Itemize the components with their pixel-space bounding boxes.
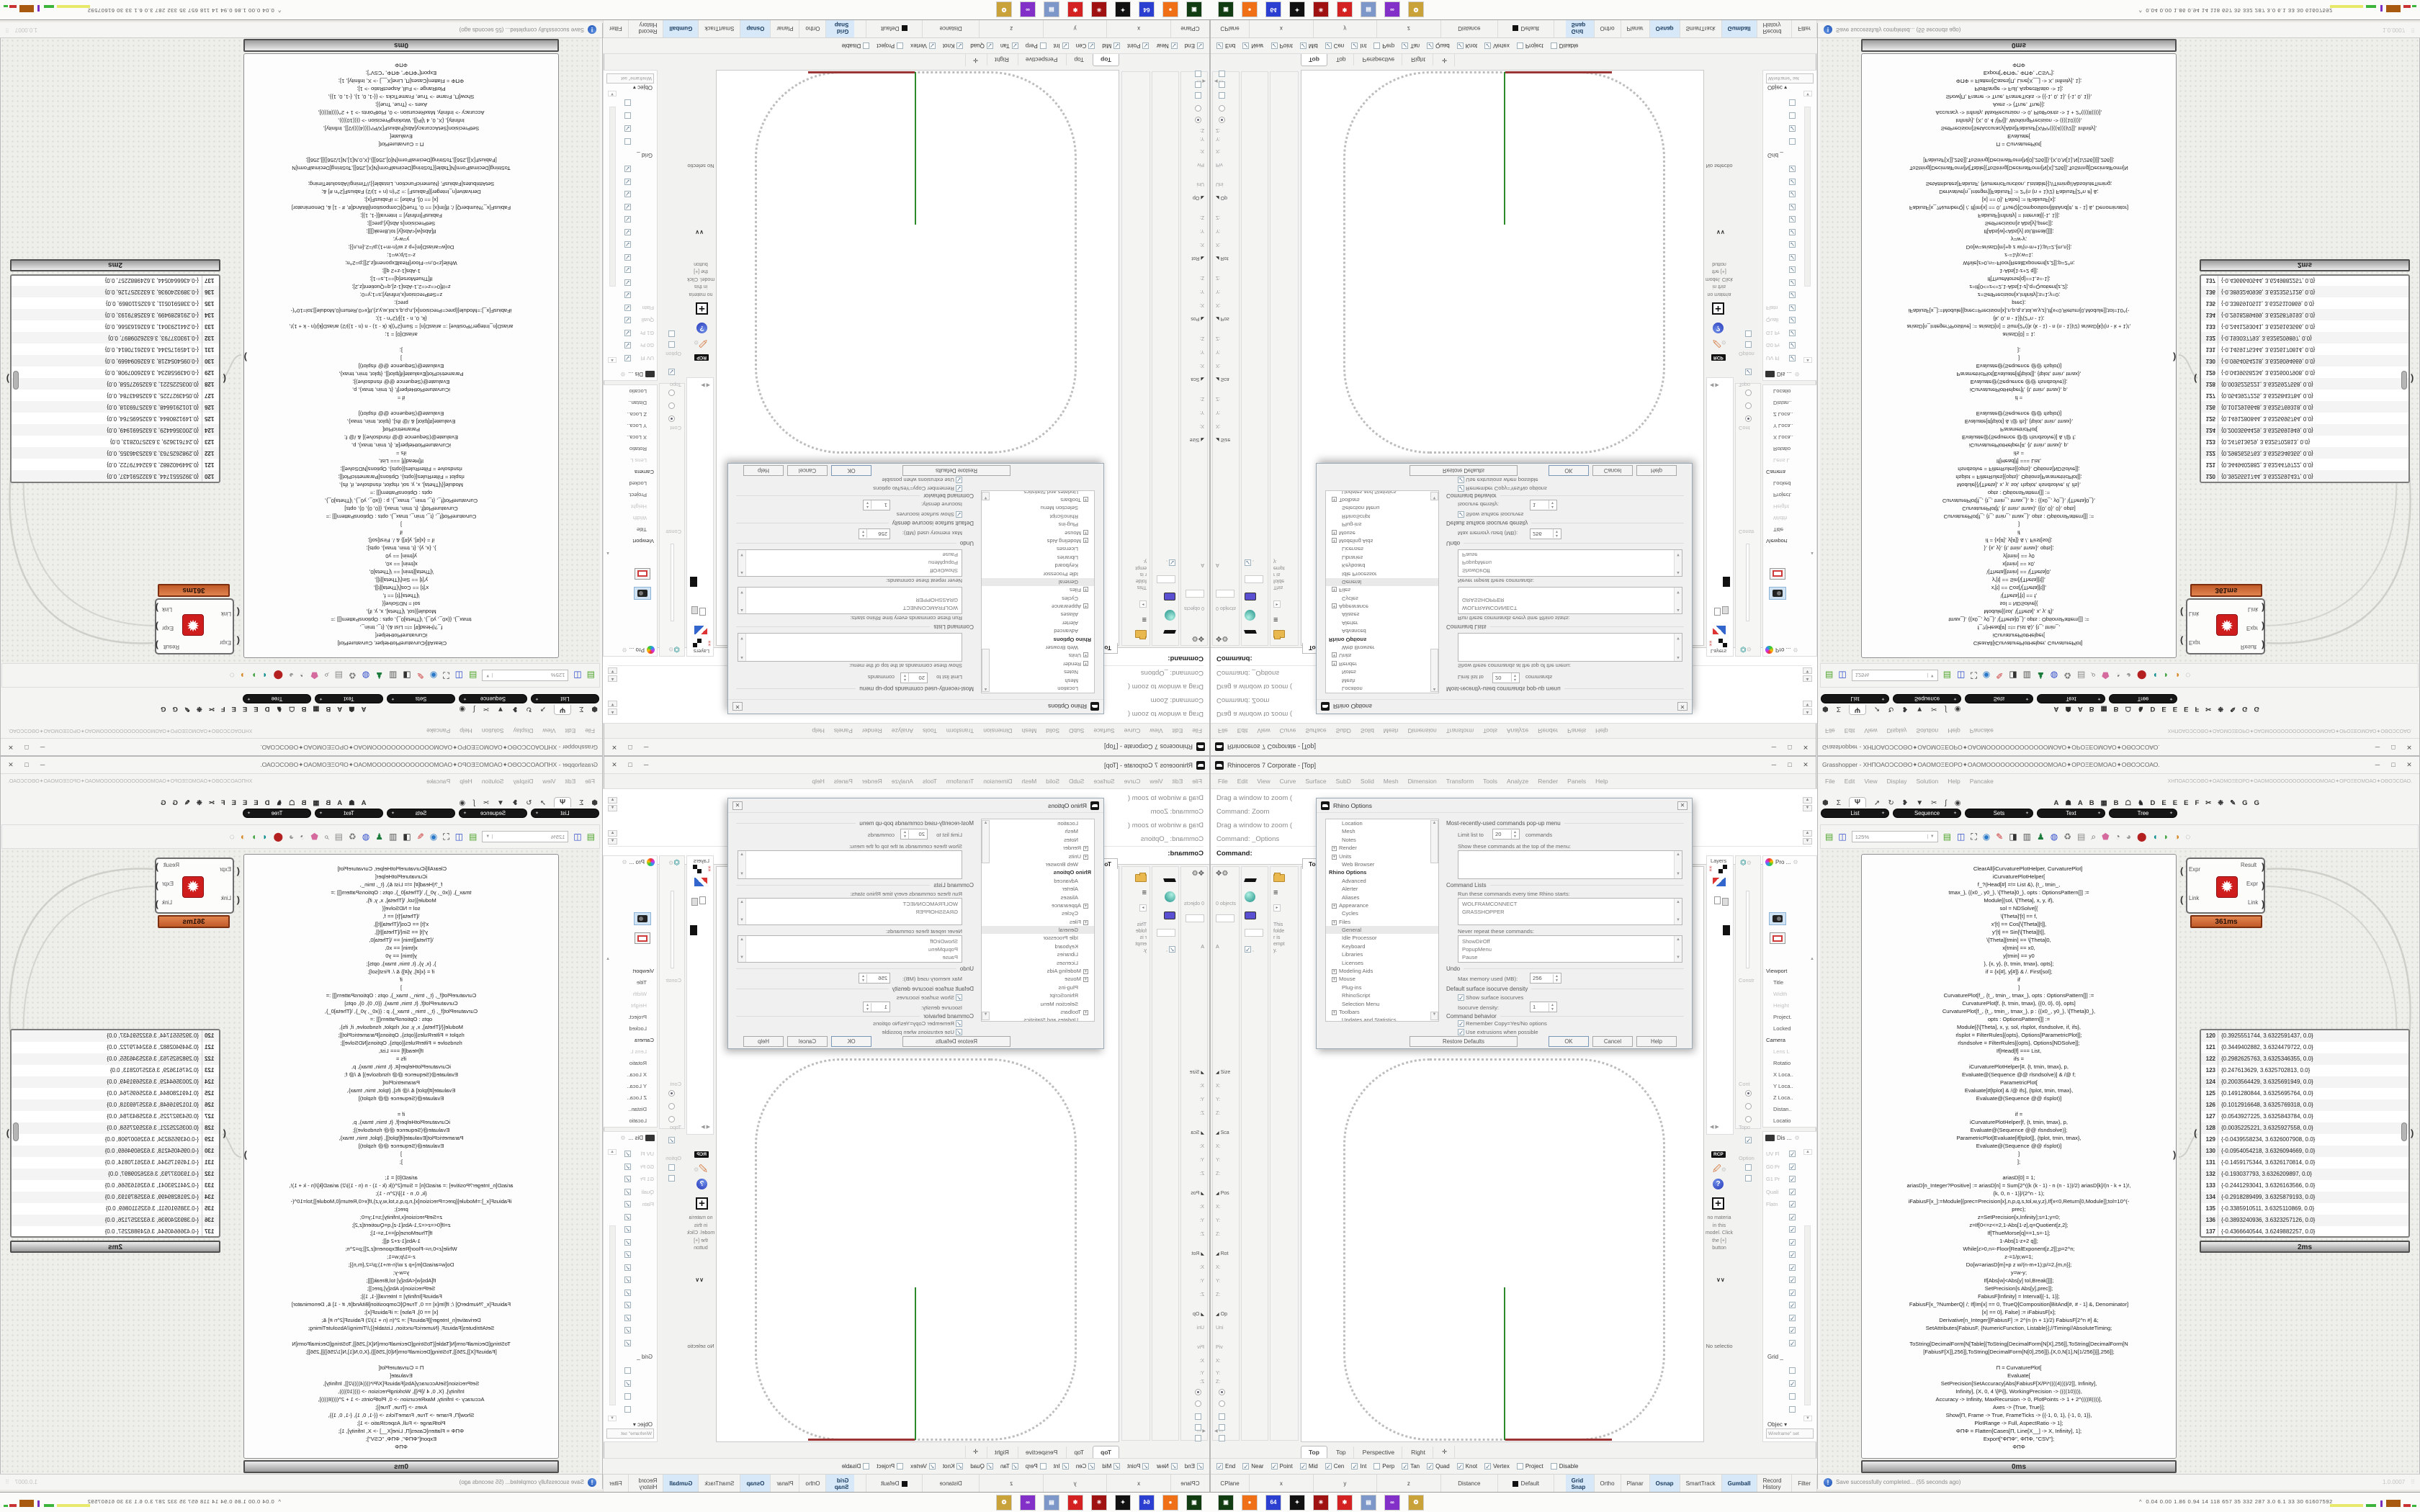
- gear-icon[interactable]: ⚙: [622, 859, 627, 865]
- camera-small-icon[interactable]: ⏣⚙: [668, 859, 680, 867]
- gh-category-icon-tab[interactable]: ✂: [1931, 799, 1937, 807]
- status-toggle[interactable]: Osnap: [1650, 19, 1680, 37]
- checkbox[interactable]: ✓: [1745, 369, 1752, 375]
- command-scrollbar[interactable]: ▲▼▲▼: [1803, 666, 1812, 715]
- data-list-row[interactable]: 127{0.0543927225, 3.6325843784, 0.0}: [12, 390, 219, 401]
- osnap-toggle[interactable]: Disable: [842, 42, 870, 49]
- gh-plugin-tab[interactable]: ☖: [289, 705, 295, 713]
- checkbox[interactable]: [1745, 341, 1752, 348]
- taskbar-app-icon[interactable]: ∞: [1020, 1495, 1036, 1511]
- display-option-row[interactable]: Quali✓: [614, 1186, 657, 1199]
- gh-toolbar-icon[interactable]: ⛶: [1971, 671, 1976, 680]
- gh-category-icon-tab[interactable]: ⬢: [1822, 799, 1829, 807]
- display-option-row[interactable]: ✓: [614, 176, 657, 189]
- gh-category-icon-tab[interactable]: Ψ: [554, 705, 571, 715]
- display-option-row[interactable]: ✓: [1763, 1274, 1806, 1287]
- minimize-button[interactable]: ─: [2372, 761, 2383, 769]
- menu-item[interactable]: Curve: [1280, 727, 1296, 734]
- checkbox[interactable]: [1219, 92, 1225, 99]
- display-option-row[interactable]: G1 Pr✓: [614, 1173, 657, 1186]
- osnap-toggle[interactable]: ✓Knot: [943, 42, 963, 49]
- mathematica-code-panel[interactable]: ClearAll[iCurvaturePlotHelper, Curvature…: [1861, 53, 2177, 658]
- output-socket[interactable]: ): [2262, 863, 2264, 870]
- property-row[interactable]: Title: [605, 977, 657, 989]
- osnap-toggle[interactable]: ✓Point: [1127, 42, 1149, 49]
- statusbar-z[interactable]: z: [979, 19, 1043, 37]
- mini-field[interactable]: [1216, 590, 1234, 598]
- panel-input-socket[interactable]: (: [223, 375, 226, 382]
- help-icon[interactable]: ?: [1713, 1179, 1724, 1189]
- grid-option-row[interactable]: [614, 96, 657, 109]
- viewport-tab[interactable]: Perspective: [1018, 1446, 1065, 1458]
- property-row[interactable]: Locatio: [605, 385, 657, 397]
- status-toggle[interactable]: SmartTrack: [698, 1475, 740, 1493]
- options-tree-item[interactable]: Keyboard: [1326, 942, 1438, 950]
- layer-book-icon[interactable]: [694, 878, 707, 886]
- menu-item[interactable]: Edit: [565, 727, 576, 734]
- menu-item[interactable]: Solution: [482, 727, 504, 734]
- command-scrollbar[interactable]: ▲▼▲▼: [1803, 797, 1812, 846]
- checkbox[interactable]: [1195, 71, 1201, 77]
- taskbar-app-icon[interactable]: ●: [1162, 1495, 1178, 1511]
- listbox-item[interactable]: ShowDirOff: [1462, 567, 1670, 575]
- gh-category-icon-tab[interactable]: ▼: [1916, 799, 1923, 807]
- options-tree-item[interactable]: +Mouse: [982, 975, 1094, 983]
- data-list-row[interactable]: 128{0.0035225221, 3.6325927558, 0.0}: [2201, 1122, 2408, 1134]
- options-tree-item[interactable]: Aliases: [982, 611, 1094, 618]
- gh-plugin-tab[interactable]: ☖: [2125, 705, 2131, 713]
- pin-link-out[interactable]: Link: [162, 899, 172, 906]
- property-row[interactable]: Z Loca..: [1763, 408, 1815, 420]
- grid-option-row[interactable]: [1763, 1390, 1806, 1403]
- property-row[interactable]: Height: [1763, 1000, 1815, 1012]
- options-tree-item[interactable]: Aliases: [1326, 611, 1438, 618]
- camera-small-icon[interactable]: ⏣⚙: [668, 645, 680, 653]
- gh-category-icon-tab[interactable]: ◉: [460, 799, 466, 807]
- page-icon[interactable]: [699, 608, 706, 616]
- menu-item[interactable]: SubD: [1069, 778, 1084, 785]
- viewport-tab[interactable]: Top: [1093, 1446, 1119, 1458]
- display-option-row[interactable]: Flatn✓: [614, 1198, 657, 1211]
- data-list-row[interactable]: 137{-0.4366640544, 3.6249882257, 0.0}: [2201, 274, 2408, 286]
- gh-toolbar-icon[interactable]: ◌: [2185, 832, 2190, 841]
- options-tree-item[interactable]: General: [982, 578, 1094, 586]
- help-button[interactable]: Help: [743, 1036, 784, 1047]
- resize-grip[interactable]: ⠿: [2411, 1479, 2415, 1485]
- display-icon[interactable]: [1245, 912, 1256, 919]
- property-row[interactable]: Viewport: [605, 966, 657, 977]
- gh-category-icon-tab[interactable]: ↻: [526, 705, 532, 713]
- camera-button[interactable]: [1769, 912, 1786, 925]
- gh-plugin-tab[interactable]: E: [2184, 799, 2188, 807]
- gh-category-icon-tab[interactable]: ➚: [540, 705, 546, 713]
- command-scrollbar[interactable]: ▲▼▲▼: [608, 666, 617, 715]
- pin-expr-out[interactable]: Expr: [2246, 625, 2258, 631]
- scroll-down-icon[interactable]: ▼: [1803, 1416, 1812, 1421]
- display-option-row[interactable]: ✓: [1763, 176, 1806, 189]
- gh-toolbar-icon[interactable]: ⌕: [324, 832, 329, 841]
- slider-track[interactable]: [671, 891, 674, 968]
- property-row[interactable]: Camera: [605, 1035, 657, 1046]
- object-section-label[interactable]: Objec ▾: [1767, 84, 1787, 91]
- options-tree-item[interactable]: Location: [1326, 819, 1438, 827]
- gh-subcategory-pill[interactable]: Sets✦: [1965, 809, 2033, 818]
- gh-plugin-tab[interactable]: B: [2114, 705, 2119, 713]
- status-toggle[interactable]: Planar: [1621, 1475, 1650, 1493]
- hamburger-icon[interactable]: ≡: [1273, 888, 1277, 897]
- restore-defaults-button[interactable]: Restore Defaults: [1410, 1036, 1518, 1047]
- taskbar-app-icon[interactable]: ∞: [1384, 1495, 1400, 1511]
- data-list-row[interactable]: 137{-0.4366640544, 3.6249882257, 0.0}: [2201, 1226, 2408, 1238]
- taskbar-app-icon[interactable]: ❂: [1408, 2, 1424, 18]
- grid-option-row[interactable]: [614, 109, 657, 122]
- gh-toolbar-icon[interactable]: ◖: [262, 832, 267, 841]
- display-option-row[interactable]: ✓: [1763, 188, 1806, 201]
- status-toggle[interactable]: Grid Snap: [825, 1475, 854, 1493]
- viewport-tab[interactable]: Top: [1093, 54, 1119, 66]
- display-option-row[interactable]: G1 Pr✓: [614, 327, 657, 340]
- listbox-item[interactable]: GRASSHOPPER: [750, 908, 958, 916]
- gh-plugin-tab[interactable]: ❉: [2218, 799, 2223, 807]
- statusbar-cplane[interactable]: CPlane: [1211, 1475, 1250, 1493]
- gh-category-icon-tab[interactable]: Ψ: [1849, 797, 1866, 807]
- menu-item[interactable]: Edit: [1845, 727, 1855, 734]
- page-icon[interactable]: [1722, 898, 1729, 906]
- gh-plugin-tab[interactable]: ✎: [184, 705, 190, 713]
- display-option-row[interactable]: ✓: [614, 251, 657, 264]
- menu-item[interactable]: Surface: [1305, 778, 1326, 785]
- gh-toolbar-icon[interactable]: ◖: [262, 671, 267, 680]
- gh-plugin-tab[interactable]: ♞: [2138, 799, 2144, 807]
- listbox-item[interactable]: PopupMenu: [750, 945, 958, 953]
- gh-toolbar-icon[interactable]: ✎: [1996, 832, 2003, 841]
- output-socket[interactable]: ): [156, 863, 158, 870]
- statusbar-layer[interactable]: Default: [1498, 19, 1554, 37]
- data-list-row[interactable]: 131{-0.1459175344, 3.6326170814, 0.0}: [12, 343, 219, 355]
- dialog-titlebar[interactable]: Rhino Options ✕: [1317, 798, 1692, 813]
- data-list-row[interactable]: 121{0.3449402882, 3.6324479722, 0.0}: [2201, 459, 2408, 470]
- data-list-row[interactable]: 136{-0.3893240936, 3.6323257126, 0.0}: [2201, 286, 2408, 297]
- property-row[interactable]: Distan..: [605, 397, 657, 408]
- mini-field[interactable]: [1245, 575, 1263, 583]
- data-list-panel[interactable]: 120{0.3925551744, 3.6322591437, 0.0}121{…: [10, 274, 220, 483]
- mathematica-code-panel[interactable]: ClearAll[iCurvaturePlotHelper, Curvature…: [243, 53, 559, 658]
- expand-arrow[interactable]: ▸: [1139, 904, 1147, 912]
- data-list-row[interactable]: 123{0.247613629, 3.6325702813, 0.0}: [12, 436, 219, 447]
- mini-field[interactable]: [1245, 929, 1263, 937]
- menu-item[interactable]: Pancake: [1970, 727, 1994, 734]
- pin-link-out[interactable]: Link: [2248, 606, 2258, 613]
- options-tree-item[interactable]: +Files: [982, 586, 1094, 594]
- menu-item[interactable]: Solution: [1917, 727, 1939, 734]
- gh-toolbar-icon[interactable]: ⛶: [443, 671, 449, 680]
- object-section-label[interactable]: Objec ▾: [633, 1421, 653, 1428]
- output-socket[interactable]: ): [2262, 901, 2264, 908]
- options-tree-item[interactable]: Notes: [982, 836, 1094, 844]
- gh-plugin-tab[interactable]: ✎: [2230, 705, 2236, 713]
- data-list-row[interactable]: 130{-0.0954054218, 3.6326094669, 0.0}: [2201, 1146, 2408, 1157]
- gh-toolbar-icon[interactable]: ◕: [2126, 832, 2131, 841]
- menu-item[interactable]: View: [542, 727, 555, 734]
- radio[interactable]: [668, 1103, 675, 1110]
- gh-toolbar-icon[interactable]: ◨: [2009, 671, 2017, 680]
- options-tree-item[interactable]: Mesh: [1326, 676, 1438, 684]
- menu-item[interactable]: Curve: [1124, 778, 1141, 785]
- gh-plugin-tab[interactable]: E: [2173, 799, 2177, 807]
- layer-book-icon[interactable]: [1713, 626, 1726, 634]
- options-tree-item[interactable]: Licenses: [982, 959, 1094, 967]
- gh-plugin-tab[interactable]: B: [302, 705, 307, 713]
- viewport-tab[interactable]: Top: [1066, 1446, 1091, 1458]
- gh-plugin-tab[interactable]: E: [2184, 705, 2188, 713]
- checkbox[interactable]: [668, 1164, 675, 1171]
- expand-arrow[interactable]: ▸: [1273, 904, 1281, 912]
- sphere-icon[interactable]: [1245, 610, 1255, 621]
- display-option-row[interactable]: ✓: [1763, 1248, 1806, 1261]
- maximize-button[interactable]: □: [21, 761, 32, 769]
- menu-item[interactable]: Display: [513, 727, 533, 734]
- listbox-item[interactable]: PopupMenu: [1462, 945, 1670, 953]
- menu-item[interactable]: Render: [1538, 727, 1558, 734]
- data-list-row[interactable]: 120{0.3925551744, 3.6322591437, 0.0}: [2201, 1030, 2408, 1042]
- gh-toolbar-icon[interactable]: ⬤: [2137, 671, 2146, 680]
- status-toggle[interactable]: Ortho: [1595, 1475, 1621, 1493]
- gear-icon[interactable]: ⚙: [1794, 371, 1799, 377]
- options-tree-item[interactable]: +Toolbars: [982, 1008, 1094, 1016]
- menu-item[interactable]: Edit: [1237, 778, 1248, 785]
- dialog-titlebar[interactable]: Rhino Options ✕: [1317, 699, 1692, 714]
- property-row[interactable]: Width: [1763, 989, 1815, 1000]
- listbox-item[interactable]: PopupMenu: [750, 559, 958, 567]
- gh-plugin-tab[interactable]: ▦: [313, 705, 319, 713]
- options-tree-item[interactable]: Plug-ins: [982, 521, 1094, 528]
- status-toggle[interactable]: Ortho: [1595, 19, 1621, 37]
- gh-subcategory-pill[interactable]: Sequence✦: [459, 694, 527, 703]
- osnap-toggle[interactable]: ✓Quad: [970, 42, 993, 49]
- data-list-row[interactable]: 124{0.2003564429, 3.6325691949, 0.0}: [12, 424, 219, 436]
- osnap-toggle[interactable]: Project: [1517, 42, 1543, 49]
- status-toggle[interactable]: Osnap: [740, 19, 770, 37]
- display-option-row[interactable]: ✓: [614, 1287, 657, 1300]
- radio[interactable]: [1195, 117, 1201, 123]
- scroll-up-icon[interactable]: ▲: [1810, 551, 1814, 555]
- gh-plugin-tab[interactable]: B: [2089, 705, 2094, 713]
- menu-item[interactable]: Transform: [1446, 727, 1474, 734]
- osnap-toggle[interactable]: ✓Tan: [1000, 1463, 1018, 1470]
- dialog-close-button[interactable]: ✕: [1677, 703, 1688, 711]
- grid-option-row[interactable]: [614, 1364, 657, 1377]
- layer-book-icon[interactable]: [694, 626, 707, 634]
- gh-toolbar-icon[interactable]: ◍: [362, 671, 369, 680]
- gh-toolbar-icon[interactable]: ◨: [2009, 832, 2017, 841]
- gh-toolbar-icon[interactable]: ⬟: [310, 832, 318, 841]
- layer-book-icon[interactable]: [1713, 878, 1726, 886]
- properties-title[interactable]: Pro ...: [629, 647, 645, 653]
- data-list-row[interactable]: 136{-0.3893240936, 3.6323257126, 0.0}: [12, 286, 219, 297]
- rcp-badge[interactable]: RCP: [1711, 1151, 1726, 1158]
- options-tree-item[interactable]: Libraries: [982, 553, 1094, 561]
- gh-subcategory-pill[interactable]: Sets✦: [387, 694, 455, 703]
- property-row[interactable]: Title: [1763, 977, 1815, 989]
- gh-plugin-tab[interactable]: G: [2242, 705, 2247, 713]
- options-tree-item[interactable]: Advanced: [1326, 877, 1438, 885]
- options-tree-item[interactable]: Location: [982, 819, 1094, 827]
- maximize-button[interactable]: □: [2388, 743, 2399, 751]
- statusbar-y[interactable]: y: [1314, 19, 1378, 37]
- property-row[interactable]: Width: [605, 512, 657, 523]
- sphere-icon[interactable]: [1165, 891, 1175, 902]
- ok-button[interactable]: OK: [831, 465, 871, 476]
- menu-item[interactable]: Analyze: [892, 778, 913, 785]
- page-icon[interactable]: [691, 606, 698, 614]
- data-list-row[interactable]: 132{-0.193037793, 3.6326209897, 0.0}: [12, 1169, 219, 1180]
- top-commands-listbox[interactable]: ▲▼: [1458, 850, 1682, 879]
- gh-plugin-tab[interactable]: E: [243, 799, 247, 807]
- taskbar-app-icon[interactable]: ✱: [1337, 2, 1353, 18]
- gh-toolbar-icon[interactable]: ◍: [362, 832, 369, 841]
- status-toggle[interactable]: Gumball: [1722, 19, 1757, 37]
- gh-category-icon-tab[interactable]: Σ: [1837, 799, 1841, 807]
- checkbox[interactable]: ✓: [668, 1137, 675, 1143]
- limit-input[interactable]: 20▲▼: [900, 672, 928, 683]
- menu-item[interactable]: Help: [1948, 778, 1960, 785]
- taskbar-app-icon[interactable]: ✦: [1115, 2, 1131, 18]
- pin-result-out[interactable]: Result: [2241, 862, 2257, 868]
- statusbar-y[interactable]: y: [1314, 1475, 1378, 1493]
- options-tree-item[interactable]: Web Browser: [982, 644, 1094, 652]
- rcp-badge[interactable]: RCP: [694, 354, 709, 361]
- gh-plugin-tab[interactable]: ☗: [2065, 799, 2071, 807]
- data-list-row[interactable]: 123{0.247613629, 3.6325702813, 0.0}: [12, 1065, 219, 1076]
- osnap-toggle[interactable]: ✓End: [1185, 42, 1204, 49]
- options-tree-item[interactable]: Location: [982, 685, 1094, 693]
- menu-item[interactable]: SubD: [1336, 778, 1351, 785]
- slider-track[interactable]: [1746, 891, 1749, 968]
- page-icon[interactable]: [1714, 608, 1721, 616]
- display-option-row[interactable]: Quali✓: [1763, 314, 1806, 327]
- options-tree-item[interactable]: General: [1326, 578, 1438, 586]
- chevron-up-icon[interactable]: ^: [2139, 1498, 2142, 1505]
- checkbox[interactable]: [1745, 1164, 1752, 1171]
- status-toggle[interactable]: SmartTrack: [1680, 19, 1722, 37]
- gh-category-icon-tab[interactable]: ↻: [1888, 705, 1894, 713]
- data-list-row[interactable]: 137{-0.4366640544, 3.6249882257, 0.0}: [12, 274, 219, 286]
- rhino-titlebar[interactable]: Rhinoceros 7 Corporate - [Top] ─ □ ✕: [604, 757, 1209, 774]
- data-list-row[interactable]: 135{-0.3385910511, 3.6325110869, 0.0}: [12, 1203, 219, 1215]
- gh-subcategory-pill[interactable]: Text✦: [315, 694, 383, 703]
- gh-plugin-tab[interactable]: E: [254, 705, 258, 713]
- cancel-button[interactable]: Cancel: [787, 465, 828, 476]
- osnap-toggle[interactable]: ✓Mid: [1102, 1463, 1120, 1470]
- gh-toolbar-icon[interactable]: ◨: [403, 832, 411, 841]
- rhino-options-dialog[interactable]: Rhino Options ✕ LocationMeshNotes+Render…: [727, 798, 1104, 1049]
- resize-grip[interactable]: ⠿: [5, 1479, 9, 1485]
- grid-option-row[interactable]: [1763, 109, 1806, 122]
- listbox-item[interactable]: WOLFRAMCONNECT: [1462, 604, 1670, 612]
- menu-item[interactable]: Solid: [1046, 778, 1059, 785]
- radio[interactable]: [1219, 1389, 1225, 1395]
- mini-field[interactable]: [1216, 914, 1234, 922]
- options-tree-item[interactable]: Updates and Statistics: [1326, 490, 1438, 496]
- gh-subcategory-pill[interactable]: List✦: [531, 809, 599, 818]
- menu-item[interactable]: Mesh: [1021, 778, 1036, 785]
- display-option-row[interactable]: Quali✓: [614, 314, 657, 327]
- options-tree-item[interactable]: RhinoScript: [982, 991, 1094, 999]
- gh-plugin-tab[interactable]: G: [2254, 799, 2259, 807]
- menu-item[interactable]: Edit: [1237, 727, 1248, 734]
- data-list-row[interactable]: 132{-0.193037793, 3.6326209897, 0.0}: [2201, 332, 2408, 343]
- radio[interactable]: [668, 1090, 675, 1097]
- options-tree-item[interactable]: Selection Menu: [1326, 504, 1438, 512]
- data-list-row[interactable]: 132{-0.193037793, 3.6326209897, 0.0}: [2201, 1169, 2408, 1180]
- properties-title[interactable]: Pro ...: [629, 859, 645, 865]
- osnap-toggle[interactable]: ✓Tan: [1402, 42, 1420, 49]
- gh-plugin-tab[interactable]: E: [243, 705, 247, 713]
- viewport-tab[interactable]: Right: [987, 1446, 1016, 1458]
- gh-toolbar-icon[interactable]: ◉: [1983, 671, 1990, 680]
- menu-item[interactable]: Dimension: [1408, 727, 1437, 734]
- gh-plugin-tab[interactable]: ♞: [2138, 705, 2144, 713]
- input-socket[interactable]: (: [237, 896, 240, 904]
- gh-category-icon-tab[interactable]: ✂: [483, 799, 489, 807]
- gh-plugin-tab[interactable]: D: [265, 799, 270, 807]
- ok-button[interactable]: OK: [1549, 465, 1589, 476]
- menu-item[interactable]: File: [1825, 778, 1835, 785]
- grid-option-row[interactable]: [614, 1403, 657, 1416]
- code-output-socket[interactable]: ): [244, 354, 247, 361]
- help-icon[interactable]: ?: [1713, 323, 1724, 333]
- status-toggle[interactable]: Record History: [1757, 1475, 1793, 1493]
- gh-plugin-tab[interactable]: A: [2053, 799, 2058, 807]
- display-option-row[interactable]: G0 Pr✓: [1763, 339, 1806, 352]
- zoom-select[interactable]: 125%▼: [482, 831, 568, 842]
- property-row[interactable]: Height: [1763, 500, 1815, 512]
- property-row[interactable]: Z Loca..: [605, 1092, 657, 1104]
- checker-icon[interactable]: [1718, 865, 1727, 873]
- grid-section-label[interactable]: Grid _: [1767, 1354, 1783, 1360]
- menu-item[interactable]: Dimension: [983, 727, 1012, 734]
- gh-toolbar-icon[interactable]: ⛶: [443, 832, 449, 841]
- limit-input[interactable]: 20▲▼: [1492, 829, 1520, 840]
- gh-titlebar[interactable]: Grasshopper - XHΠΟΑΟƆCΟΘΟ✦ΟΑΟΜΟΞΕΟΡΟ✦ΟΑΟ…: [1818, 738, 2419, 755]
- output-socket[interactable]: ): [2262, 604, 2264, 611]
- display-option-row[interactable]: ✓: [1763, 1299, 1806, 1312]
- options-tree-item[interactable]: +Units: [1326, 852, 1438, 860]
- gh-toolbar-icon[interactable]: ◗: [251, 832, 256, 841]
- gh-toolbar-icon[interactable]: ◔: [300, 832, 305, 841]
- taskbar-app-icon[interactable]: 64: [1265, 2, 1281, 18]
- options-tree-item[interactable]: Web Browser: [982, 860, 1094, 868]
- menu-item[interactable]: Analyze: [1507, 727, 1528, 734]
- taskbar-app-icon[interactable]: ▣: [1218, 2, 1234, 18]
- gh-category-icon-tab[interactable]: ʃ: [473, 705, 475, 713]
- property-row[interactable]: Y Loca..: [1763, 1081, 1815, 1092]
- data-list-row[interactable]: 131{-0.1459175344, 3.6326170814, 0.0}: [12, 1157, 219, 1169]
- gh-toolbar-icon[interactable]: ◌: [2185, 671, 2190, 680]
- data-list-row[interactable]: 135{-0.3385910511, 3.6325110869, 0.0}: [2201, 297, 2408, 309]
- menu-item[interactable]: Transform: [946, 778, 974, 785]
- scroll-up-icon[interactable]: ▲: [606, 957, 610, 961]
- data-list-row[interactable]: 134{-0.2918289499, 3.6325879193, 0.0}: [2201, 309, 2408, 320]
- menu-item[interactable]: Solution: [482, 778, 504, 785]
- gh-toolbar-icon[interactable]: ◗: [2164, 671, 2169, 680]
- display-option-row[interactable]: G0 Pr✓: [1763, 1161, 1806, 1174]
- statusbar-x[interactable]: x: [1106, 19, 1170, 37]
- osnap-toggle[interactable]: ✓Int: [1054, 42, 1069, 49]
- pin-expr-out[interactable]: Expr: [162, 625, 174, 631]
- gh-toolbar-icon[interactable]: ◔: [2115, 832, 2120, 841]
- osnap-toggle[interactable]: ✓Vertex: [1484, 42, 1510, 49]
